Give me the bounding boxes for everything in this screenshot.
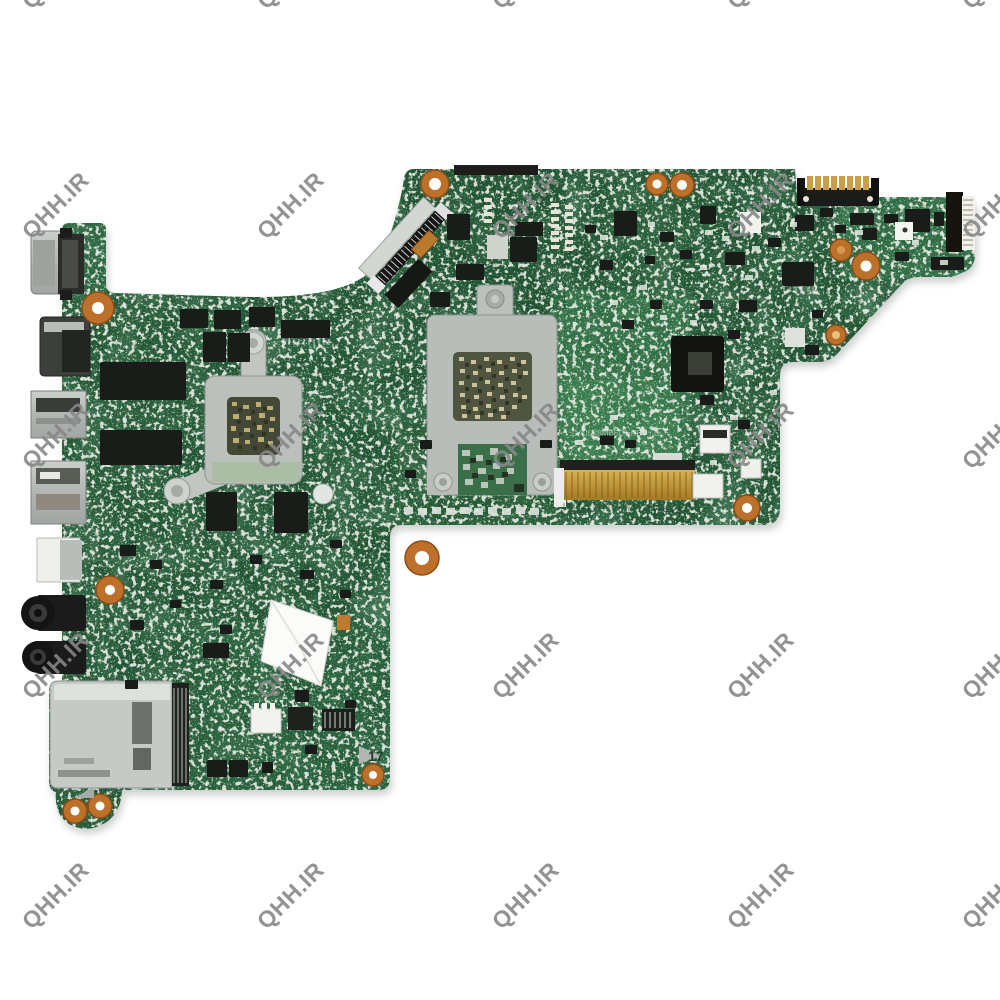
svg-text:17: 17 — [368, 748, 384, 764]
svg-text:LX89: LX89 — [650, 507, 674, 518]
svg-text:DA0LX8MB6D1 REV : D: DA0LX8MB6D1 REV : D — [572, 429, 660, 438]
